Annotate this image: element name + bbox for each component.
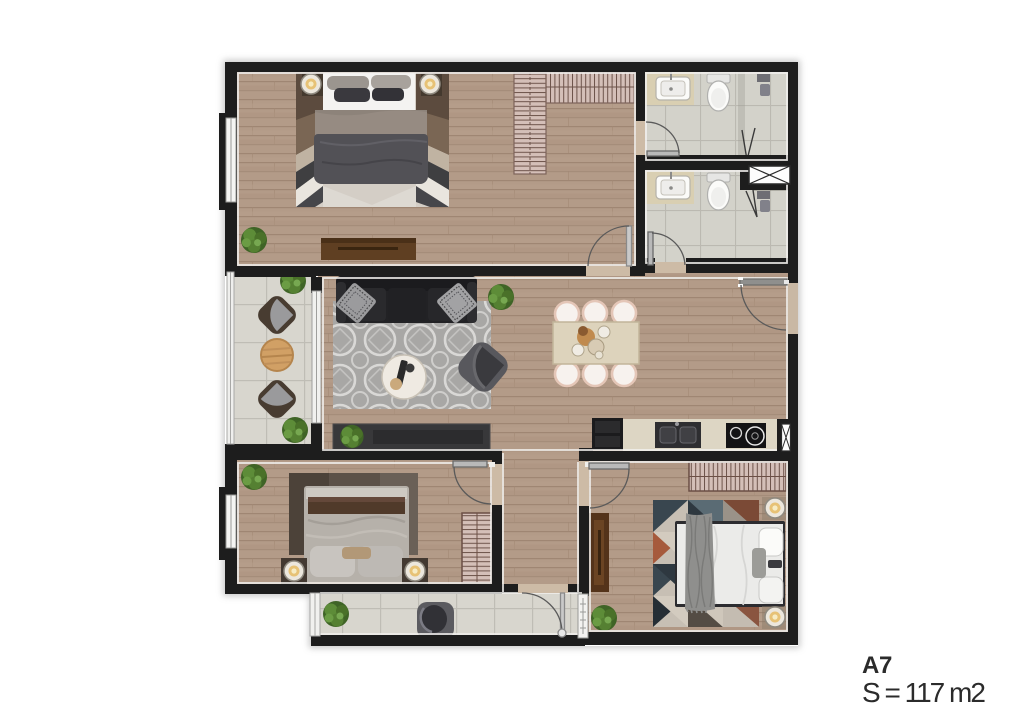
svg-text:S = 117 m2: S = 117 m2	[862, 677, 985, 708]
svg-text:A7: A7	[862, 652, 892, 679]
